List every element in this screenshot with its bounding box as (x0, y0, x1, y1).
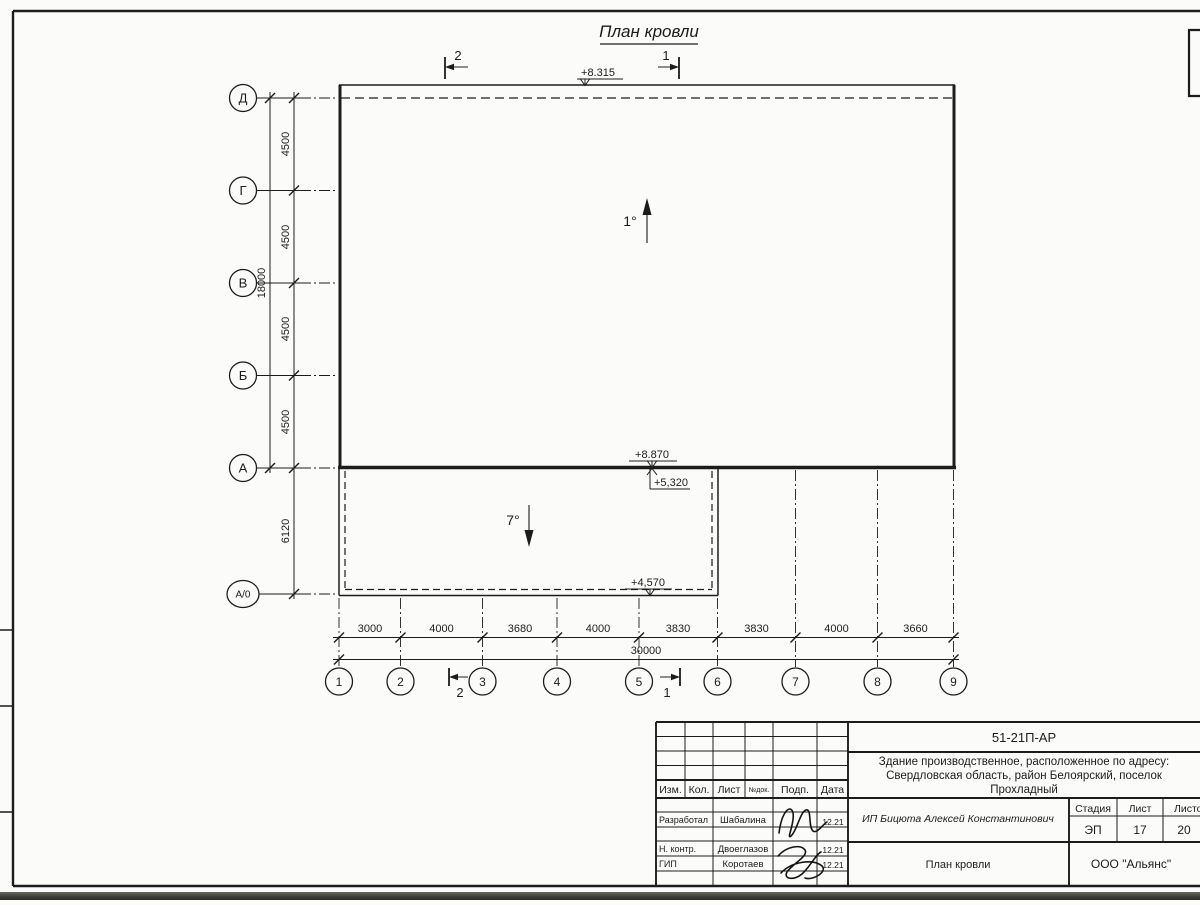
dim-h-8: 3660 (903, 623, 927, 635)
slope-annex-label: 7° (506, 512, 519, 528)
elevation-mark-wall-upper: +8.870 (629, 449, 677, 468)
slope-arrow-annex: 7° (506, 505, 533, 547)
axis-label-6: 6 (714, 675, 721, 689)
sheets-total: 20 (1177, 823, 1191, 837)
col-list: Лист (718, 784, 741, 796)
row-date: 12.21 (822, 845, 844, 855)
sheet-number: 17 (1133, 823, 1147, 837)
signature-1 (779, 809, 827, 837)
col-ndok: №док. (749, 787, 770, 794)
axis-label-a: А (239, 461, 248, 476)
stage-value: ЭП (1084, 823, 1101, 837)
elevation-annex-label: +4,570 (631, 577, 665, 589)
axis-label-1: 1 (336, 675, 343, 689)
row-role: ГИП (659, 859, 677, 869)
col-izm: Изм. (659, 784, 682, 796)
section-top-right-label: 1 (662, 48, 669, 63)
sheet-label: Лист (1129, 803, 1152, 815)
col-podp: Подп. (781, 784, 809, 796)
sheets-label: Листов (1174, 803, 1200, 815)
signature-scribbles (778, 809, 827, 879)
arrow-right-icon (671, 674, 680, 680)
scan-edge-strip (0, 892, 1200, 900)
title-block: Изм. Кол. Лист №док. Подп. Дата Разработ… (656, 722, 1200, 886)
frame-corner-box (1189, 30, 1200, 96)
dim-vertical-2: 4500 (280, 225, 292, 249)
title-block-signature-rows: Разработал Шабалина 12.21 Н. контр. Двое… (659, 815, 844, 870)
dim-h-2: 4000 (429, 623, 453, 635)
row-date: 12.21 (822, 860, 844, 870)
description-line-2: Свердловская область, район Белоярский, … (886, 770, 1163, 782)
axis-label-a0: А/0 (235, 590, 250, 601)
section-mark-top-right: 1 (658, 48, 679, 79)
arrow-down-icon (525, 530, 534, 547)
doc-number: 51-21П-АР (992, 730, 1056, 745)
dim-h-1: 3000 (358, 623, 382, 635)
left-axis-labels: Д Г В Б А А/0 (235, 91, 250, 601)
elevation-mark-annex: +4,570 (625, 577, 672, 596)
section-top-left-label: 2 (454, 48, 461, 63)
bottom-axis-bubbles (326, 668, 968, 695)
dim-vertical-total: 18000 (256, 268, 268, 299)
axis-label-5: 5 (636, 675, 643, 689)
axis-label-8: 8 (874, 675, 881, 689)
stage-label: Стадия (1075, 803, 1111, 815)
axis-label-g: Г (239, 183, 246, 198)
section-bottom-right-label: 1 (663, 685, 670, 700)
roof-plan-drawing: План кровли 1° 7° +8.315 (0, 0, 1200, 900)
row-name: Двоеглазов (718, 844, 769, 855)
dim-h-7: 4000 (824, 623, 848, 635)
axis-label-v: В (239, 276, 248, 291)
dim-h-4: 4000 (586, 623, 610, 635)
col-kol: Кол. (689, 784, 710, 796)
elevation-mark-top: +8.315 (577, 67, 623, 86)
row-role: Разработал (659, 815, 708, 825)
arrow-left-icon (445, 64, 454, 70)
row-name: Шабалина (720, 815, 767, 826)
company-name: ООО "Альянс" (1091, 857, 1171, 871)
axis-label-9: 9 (950, 675, 957, 689)
dim-vertical-4: 4500 (280, 410, 292, 434)
row-date: 12.21 (822, 817, 844, 827)
dim-h-5: 3830 (666, 623, 690, 635)
elevation-top-label: +8.315 (581, 67, 615, 79)
dim-vertical-3: 4500 (280, 317, 292, 341)
section-mark-top-left: 2 (445, 48, 468, 79)
elevation-wall-lower-label: +5,320 (654, 477, 688, 489)
drawing-title-text: План кровли (599, 22, 699, 41)
dim-h-total: 30000 (631, 645, 662, 657)
slope-main-label: 1° (623, 213, 636, 229)
arrow-right-icon (670, 64, 679, 70)
section-bottom-left-label: 2 (456, 685, 463, 700)
dim-h-6: 3830 (744, 623, 768, 635)
dim-vertical-1: 4500 (280, 132, 292, 156)
main-roof-outline (338, 85, 956, 469)
axis-label-b: Б (239, 368, 248, 383)
sheet-frame (0, 11, 1200, 886)
dim-annex-vertical: 6120 (280, 519, 292, 543)
arrow-up-icon (643, 198, 652, 215)
sheet-title: План кровли (926, 859, 991, 871)
section-mark-bottom-left: 2 (449, 668, 468, 700)
bottom-dimension-labels: 3000 4000 3680 4000 3830 3830 4000 3660 … (358, 623, 928, 657)
row-name: Коротаев (722, 859, 763, 870)
section-mark-bottom-right: 1 (660, 668, 680, 700)
row-role: Н. контр. (659, 844, 696, 854)
axis-label-7: 7 (792, 675, 799, 689)
axis-label-4: 4 (554, 675, 561, 689)
slope-arrow-main: 1° (623, 198, 651, 243)
left-axis-bubbles (227, 85, 259, 608)
axis-label-2: 2 (397, 675, 404, 689)
dim-h-3: 3680 (508, 623, 532, 635)
left-axis-leaders (257, 98, 339, 594)
left-dimension-labels: 4500 4500 4500 4500 6120 18000 (256, 132, 292, 543)
description-line-3: Прохладный (990, 784, 1058, 796)
elevation-mark-wall-lower: +5,320 (647, 468, 690, 489)
axis-label-d: Д (239, 91, 248, 106)
project-description: Здание производственное, расположенное п… (879, 756, 1169, 796)
elevation-arrow-icon (647, 469, 657, 476)
drawing-title: План кровли (599, 22, 699, 44)
axis-label-3: 3 (479, 675, 486, 689)
arrow-left-icon (449, 674, 458, 680)
client-name: ИП Бицюта Алексей Константинович (862, 813, 1054, 825)
elevation-wall-upper-label: +8.870 (635, 449, 669, 461)
col-data: Дата (821, 784, 844, 796)
description-line-1: Здание производственное, расположенное п… (879, 756, 1169, 768)
